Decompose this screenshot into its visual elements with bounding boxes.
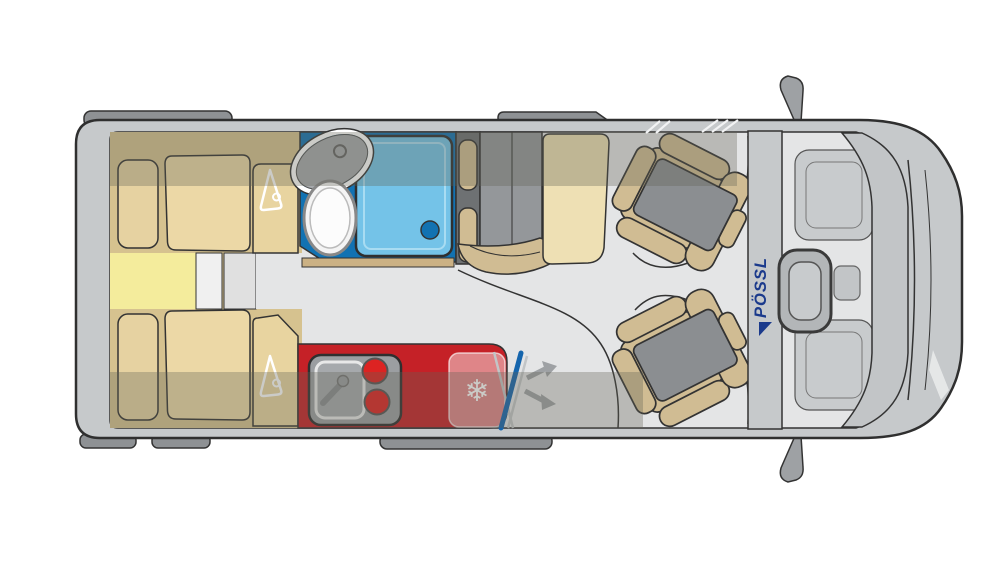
campervan-floorplan: ❄ [0,0,1000,563]
side-mirror-left [780,76,803,122]
overhead-locker-bottom [110,372,643,428]
shower-drain [421,221,439,239]
brand-logo-text: PÖSSL [751,257,770,318]
bed-middle-cushion [110,253,196,309]
middle-floor-gap [256,253,302,309]
side-mirror-right [780,436,803,482]
center-console [834,266,860,300]
middle-panel-1 [196,253,222,309]
steering-wheel-hub [789,262,821,320]
overhead-locker-top [110,132,737,186]
middle-panel-2 [224,253,256,309]
toilet-bowl [310,188,350,248]
bathroom-threshold [302,258,454,267]
cab-seat-pedestal-left [795,150,873,240]
floorplan-canvas: ❄ [0,0,1000,563]
